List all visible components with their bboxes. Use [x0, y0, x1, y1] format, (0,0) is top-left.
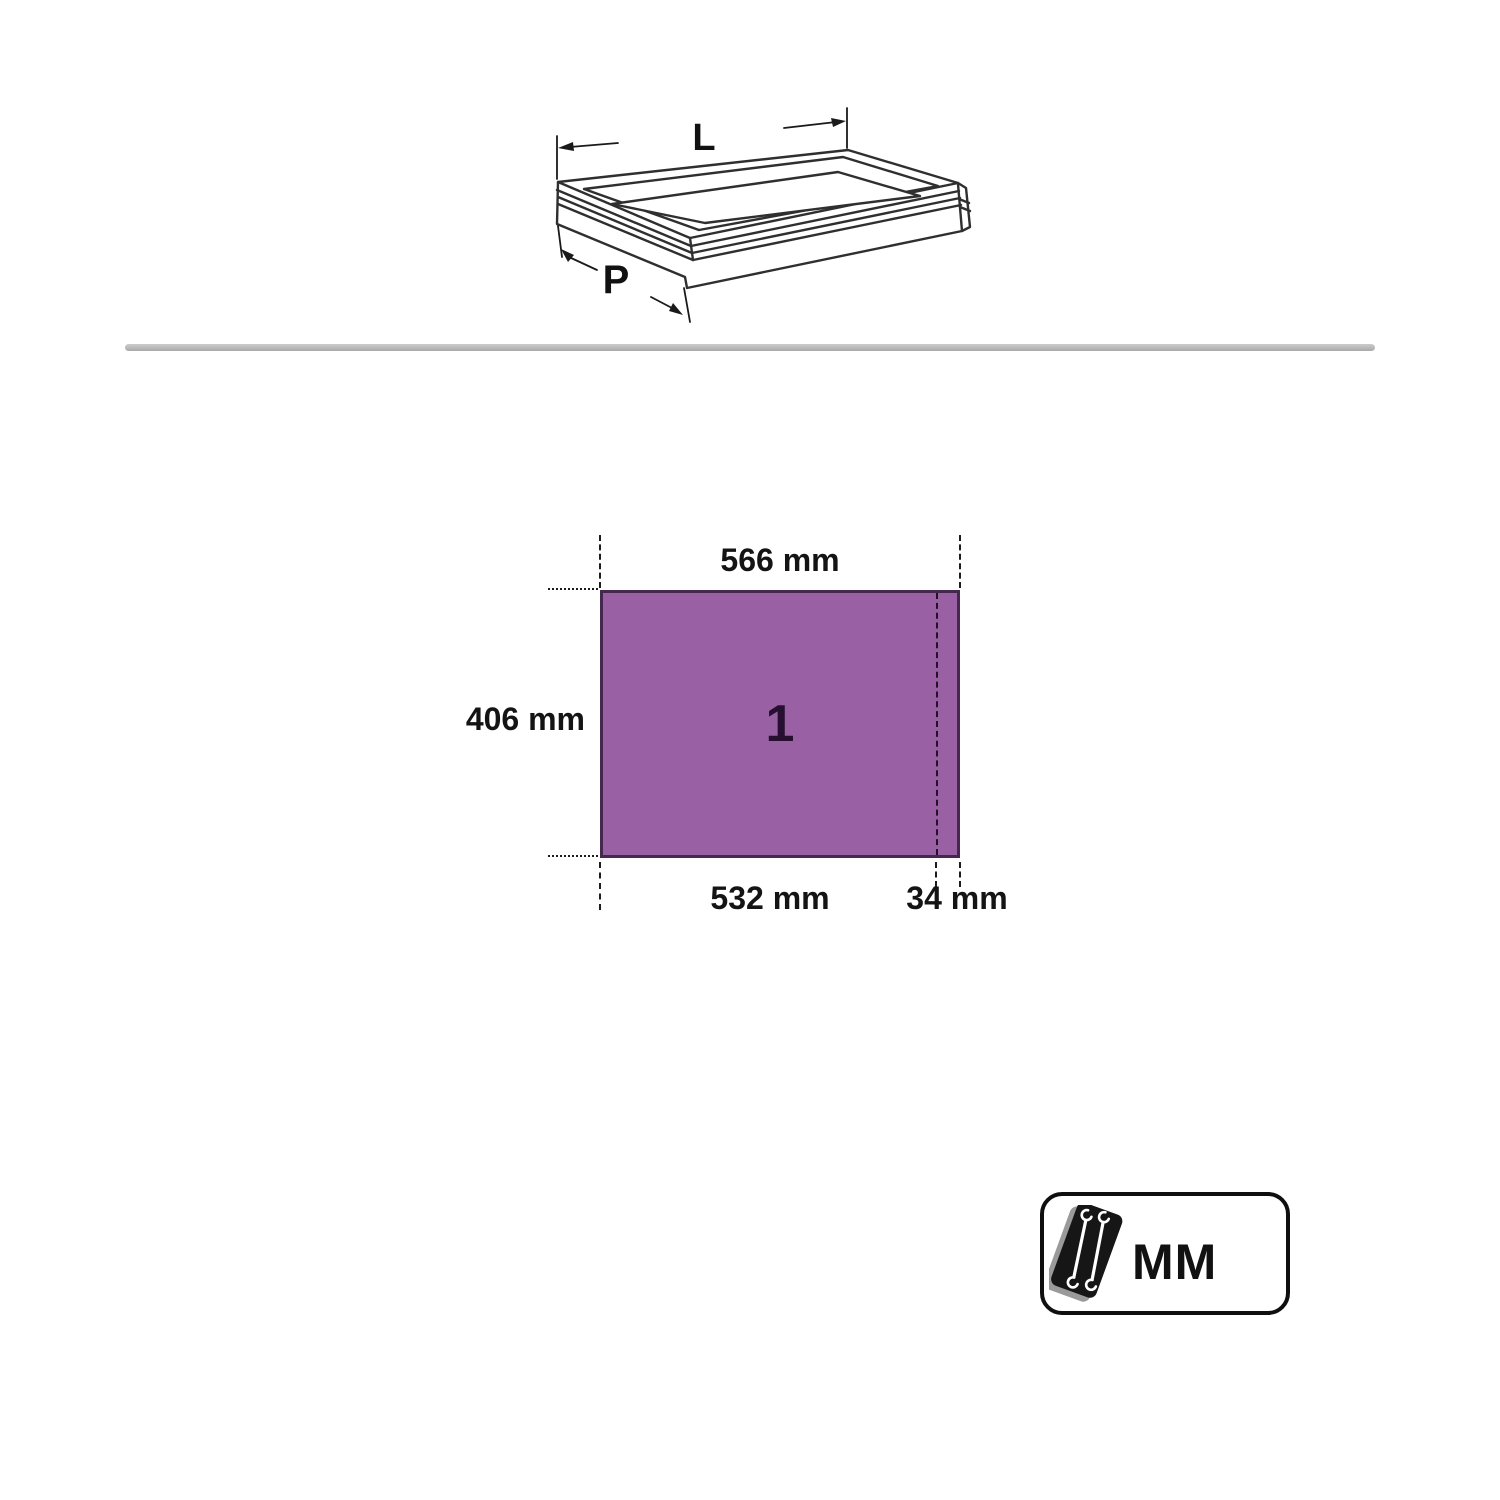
bottom-offset-dimension-label: 34 mm — [887, 880, 1027, 917]
extension-line-top-left — [599, 535, 601, 588]
page: L P 566 mm 406 mm 1 532 mm 34 mm — [0, 0, 1500, 1500]
drawer-module-area: 1 — [600, 590, 960, 858]
unit-badge-label: MM — [1132, 1196, 1217, 1311]
wrench-set-icon — [1049, 1205, 1139, 1307]
extension-line-top-right — [959, 535, 961, 588]
drawer-module-number: 1 — [603, 593, 957, 855]
extension-tick-bottom-left — [548, 855, 598, 857]
bottom-inner-width-dimension-label: 532 mm — [640, 880, 900, 917]
unit-badge: MM — [1040, 1192, 1290, 1315]
top-width-dimension-label: 566 mm — [600, 542, 960, 579]
extension-line-bottom-left — [599, 862, 601, 910]
left-height-dimension-label: 406 mm — [420, 701, 585, 738]
extension-tick-top-left — [548, 588, 598, 590]
